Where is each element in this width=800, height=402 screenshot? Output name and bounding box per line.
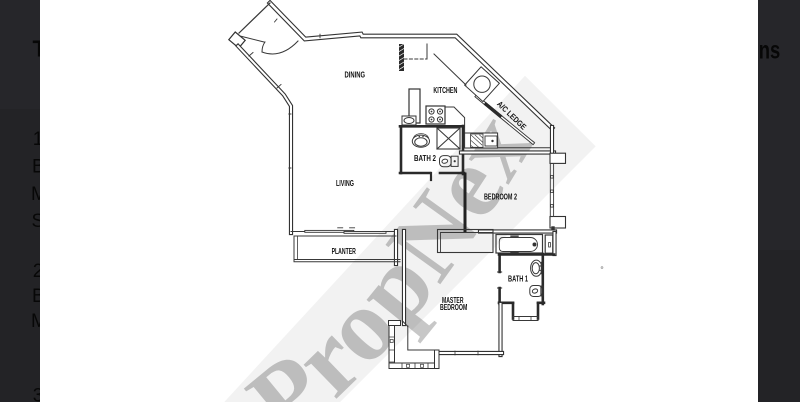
svg-text:BATH 2: BATH 2	[414, 154, 436, 163]
svg-text:PLANTER: PLANTER	[332, 247, 356, 256]
svg-text:ns: ns	[759, 36, 781, 64]
svg-text:BATH 1: BATH 1	[508, 275, 528, 284]
svg-text:LIVING: LIVING	[336, 179, 354, 188]
svg-text:KITCHEN: KITCHEN	[433, 86, 457, 95]
svg-text:BEDROOM: BEDROOM	[440, 303, 468, 312]
svg-text:DINING: DINING	[345, 70, 366, 79]
svg-text:BEDROOM 2: BEDROOM 2	[484, 193, 517, 202]
